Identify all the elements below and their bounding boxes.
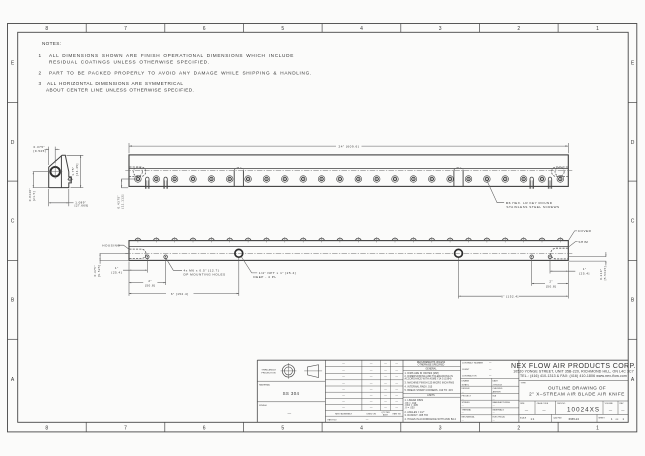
svg-text:—: — [370,394,373,397]
svg-text:ALL HORIZONTAL DIMENSIONS ARE: ALL HORIZONTAL DIMENSIONS ARE SYMMETRICA… [47,81,183,86]
svg-text:—: — [395,369,398,372]
svg-text:—: — [342,363,345,366]
svg-text:PROJECTION: PROJECTION [261,372,276,374]
svg-text:8: 8 [45,26,48,32]
svg-text:VOLUME: VOLUME [605,403,614,405]
svg-text:1. DIMS ARE IN INCHES [MM]: 1. DIMS ARE IN INCHES [MM] [405,372,439,375]
svg-text:1: 1 [596,26,599,32]
svg-text:D: D [631,140,635,146]
svg-text:3: 3 [439,26,442,32]
svg-text:—: — [384,401,387,404]
svg-text:[11.112]: [11.112] [120,194,124,208]
svg-text:USED ON: USED ON [366,414,376,416]
svg-text:6: 6 [203,425,206,431]
svg-text:PART NO: PART NO [328,418,337,421]
svg-text:ASSY: ASSY [383,414,389,417]
svg-text:MANUFACTURING: MANUFACTURING [493,401,511,404]
svg-text:—: — [366,419,369,422]
svg-text:DRAWN: DRAWN [462,379,470,382]
svg-text:—: — [370,369,373,372]
svg-text:SIZE: SIZE [520,403,525,405]
svg-text:—: — [288,412,292,416]
svg-text:6965-24: 6965-24 [569,417,580,421]
svg-text:6: 6 [203,26,206,32]
svg-text:STAINLESS STEEL SCREWS: STAINLESS STEEL SCREWS [506,205,559,209]
svg-text:ACCORDANCE WITH ASME Y14.5 (19: ACCORDANCE WITH ASME Y14.5 (1994) [405,378,452,381]
svg-text:PART NO: PART NO [393,413,402,416]
svg-text:C: C [631,219,635,225]
svg-text:—: — [395,394,398,397]
svg-text:—: — [384,376,387,379]
svg-text:FINISH: FINISH [259,405,267,407]
svg-text:2: 2 [517,425,520,431]
svg-text:MECHANICAL: MECHANICAL [462,415,476,418]
svg-text:—: — [370,401,373,404]
svg-text:[9.525]: [9.525] [97,265,101,277]
svg-text:—: — [384,369,387,372]
svg-text:—: — [384,388,387,391]
svg-text:1: 1 [596,425,599,431]
svg-text:ASHISH: ASHISH [493,391,501,394]
svg-text:—: — [342,388,345,391]
svg-text:4. HOLES IN ACCORDANCE WITH AN: 4. HOLES IN ACCORDANCE WITH ANSI B4.2 [405,418,457,421]
svg-text:—: — [395,401,398,404]
svg-text:CAD FILE: CAD FILE [553,416,562,419]
svg-text:PROJECT: PROJECT [462,396,472,398]
svg-text:—: — [384,363,387,366]
svg-text:—: — [395,407,398,410]
svg-text:—: — [370,407,373,410]
svg-text:4: 4 [360,26,363,32]
svg-text:—: — [370,388,373,391]
svg-text:CLIENT: CLIENT [462,369,470,371]
svg-text:2: 2 [39,70,42,75]
svg-text:—: — [384,382,387,385]
svg-text:2: 2 [517,26,520,32]
svg-text:[9.525]: [9.525] [34,149,47,153]
svg-text:SS 304: SS 304 [283,391,300,396]
svg-text:5: 5 [281,26,284,32]
svg-text:3: 3 [439,425,442,431]
svg-text:SHIM: SHIM [578,240,588,244]
svg-text:—: — [342,407,345,410]
svg-text:COVER: COVER [578,229,592,233]
svg-text:[21.5]: [21.5] [32,191,36,201]
svg-text:MATERIAL: MATERIAL [259,383,271,386]
svg-text:1:1: 1:1 [530,417,534,421]
svg-text:GENERAL: GENERAL [426,367,438,370]
svg-text:DATE: DATE [493,379,499,382]
svg-text:SHEET: SHEET [598,417,605,419]
svg-text:[50.8]: [50.8] [546,285,557,289]
svg-text:DEEP - 4 PL: DEEP - 4 PL [253,275,276,279]
svg-text:DESIGN: DESIGN [462,388,470,390]
svg-text:2": 2" [549,280,553,284]
svg-text:2": 2" [148,279,152,283]
svg-text:4: 4 [360,425,363,431]
svg-text:ELECTRICAL: ELECTRICAL [493,415,506,418]
svg-text:2. ANGLES = 1/2°: 2. ANGLES = 1/2° [405,411,425,414]
svg-text:—: — [395,363,398,366]
svg-text:DWG NO: DWG NO [557,403,566,405]
svg-text:LIMITS: LIMITS [427,395,435,397]
svg-text:.X = .030: .X = .030 [405,407,416,409]
svg-text:5: 5 [281,425,284,431]
svg-text:S.PATIL: S.PATIL [462,383,470,386]
svg-text:[25.4]: [25.4] [112,270,123,274]
svg-text:—: — [395,382,398,385]
svg-text:3: 3 [39,81,42,86]
svg-text:PART TO BE PACKED PROPERLY TO: PART TO BE PACKED PROPERLY TO AVOID ANY … [49,70,312,75]
svg-text:THIRD ANGLE: THIRD ANGLE [261,368,276,371]
svg-text:[44.45]: [44.45] [75,163,79,176]
svg-text:6" [152.4]: 6" [152.4] [171,292,189,296]
svg-text:—: — [370,382,373,385]
svg-text:1: 1 [39,53,42,58]
svg-text:7: 7 [124,425,127,431]
svg-text:NOTES:: NOTES: [42,41,61,46]
svg-text:THERMAL: THERMAL [462,409,472,412]
svg-text:24" [609.6]: 24" [609.6] [339,144,360,148]
svg-text:7: 7 [124,26,127,32]
svg-text:—: — [342,401,345,404]
svg-text:MATERIALS: MATERIALS [493,409,505,412]
svg-text:4. INTERNAL RADII .015: 4. INTERNAL RADII .015 [405,385,433,388]
svg-text:OUTLINE DRAWING OF: OUTLINE DRAWING OF [548,385,606,390]
svg-text:HOUSING: HOUSING [102,243,120,247]
svg-text:—: — [342,394,345,397]
svg-text:—: — [342,382,345,385]
svg-text:DP MOUNTING HOLES: DP MOUNTING HOLES [184,272,226,276]
svg-text:—: — [342,376,345,379]
svg-text:8: 8 [45,425,48,431]
svg-text:ALL DIMENSIONS SHOWN ARE FINIS: ALL DIMENSIONS SHOWN ARE FINISH OPERATIO… [49,53,294,58]
svg-text:—: — [370,376,373,379]
svg-text:2" X–STREAM AIR BLADE AIR KNIF: 2" X–STREAM AIR BLADE AIR KNIFE [529,391,625,396]
svg-text:3. MACHINE FINISH 125 MICRO IN: 3. MACHINE FINISH 125 MICRO INCH RMS [405,381,455,384]
svg-text:2. DIMENSIONING AND TOLERANCIN: 2. DIMENSIONING AND TOLERANCING IN [405,375,454,378]
svg-text:[27.669]: [27.669] [75,204,89,208]
svg-text:5. BREAK SHARP CORNERS .010 TO: 5. BREAK SHARP CORNERS .010 TO .015 [405,389,454,392]
svg-text:CONTRACTOR: CONTRACTOR [462,374,477,377]
svg-text:[5.5625]: [5.5625] [603,266,607,280]
svg-text:1. LINEAR DIMS: 1. LINEAR DIMS [405,399,424,402]
svg-text:—: — [384,407,387,410]
svg-text:3. RUNOUT .005 TIR: 3. RUNOUT .005 TIR [405,415,429,417]
svg-text:[25.4]: [25.4] [579,271,590,275]
svg-text:[50.8]: [50.8] [145,284,156,288]
svg-text:—: — [395,376,398,379]
svg-text:TEL.: (416) 410-1313 & FAX: (4: TEL.: (416) 410-1313 & FAX: (416) 410-18… [520,374,627,378]
svg-text:C: C [11,219,15,225]
svg-text:—: — [342,369,345,372]
svg-text:TYPE: TYPE [521,383,527,385]
svg-text:—: — [370,363,373,366]
svg-text:ABOUT CENTER LINE UNLESS OTHER: ABOUT CENTER LINE UNLESS OTHERWISE SPECI… [46,87,194,92]
svg-text:STRESS: STRESS [462,402,471,404]
svg-text:RESIDUAL COATINGS UNLESS OTHER: RESIDUAL COATINGS UNLESS OTHERWISE SPECI… [49,60,210,65]
svg-text:CHECKED: CHECKED [493,388,503,390]
svg-text:NEXT ASSEMBLY: NEXT ASSEMBLY [335,413,353,416]
svg-text:D: D [11,140,15,146]
svg-text:—: — [384,394,387,397]
svg-text:10024XS: 10024XS [567,406,600,413]
svg-text:CAGE CODE: CAGE CODE [537,402,549,405]
svg-text:CONTRACT NUMBER: CONTRACT NUMBER [462,362,484,365]
svg-text:1": 1" [583,267,587,271]
svg-text:SCALE: SCALE [520,416,527,419]
svg-text:6" [152.4]: 6" [152.4] [501,295,519,299]
svg-text:—: — [395,388,398,391]
svg-text:10520 YONGE STREET, UNIT 35B-2: 10520 YONGE STREET, UNIT 35B-220, RICHMO… [513,370,634,374]
